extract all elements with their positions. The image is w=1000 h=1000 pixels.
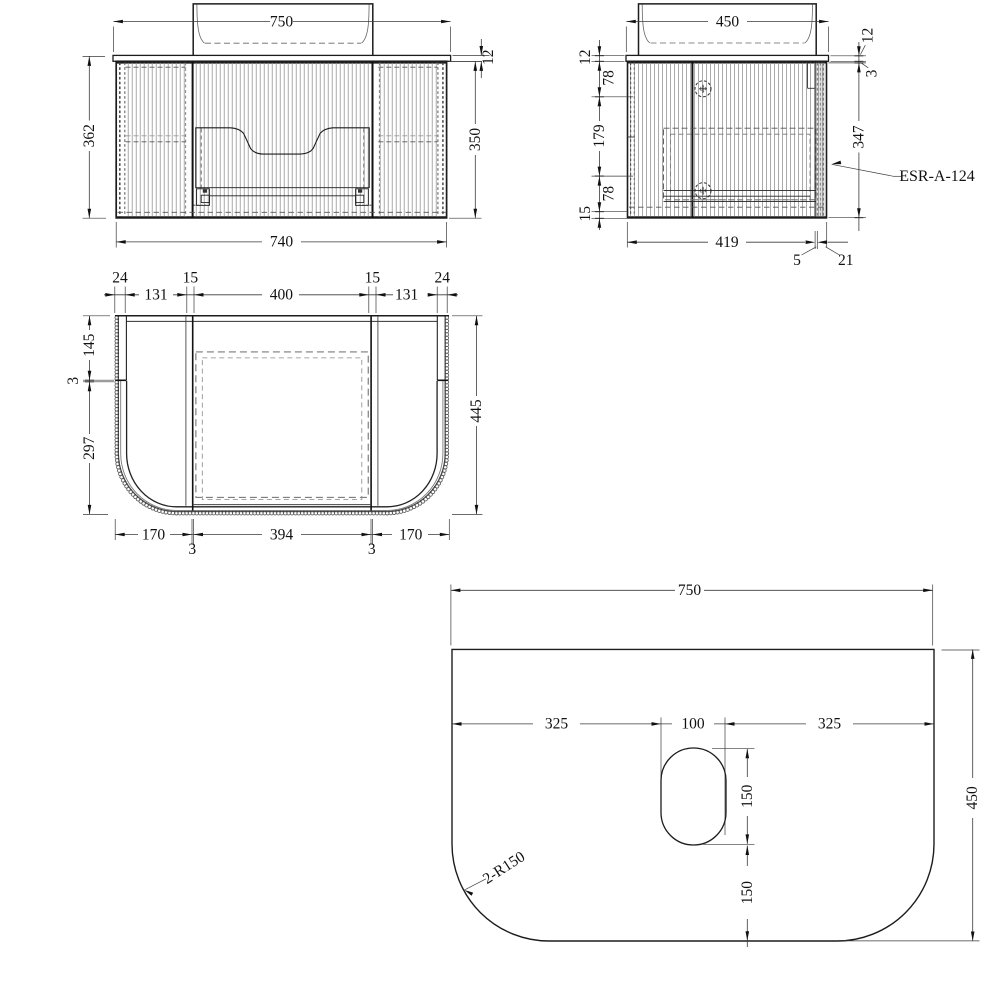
svg-text:179: 179 — [591, 124, 608, 148]
svg-text:350: 350 — [467, 128, 484, 152]
svg-text:170: 170 — [142, 526, 166, 543]
svg-text:362: 362 — [81, 124, 98, 147]
svg-text:5: 5 — [793, 252, 801, 269]
svg-text:78: 78 — [600, 186, 617, 202]
svg-text:750: 750 — [678, 582, 702, 599]
svg-text:3: 3 — [188, 541, 196, 558]
svg-text:325: 325 — [545, 716, 569, 733]
svg-text:ESR-A-124: ESR-A-124 — [899, 168, 975, 185]
svg-text:12: 12 — [859, 28, 876, 44]
svg-text:347: 347 — [850, 125, 867, 149]
svg-text:3: 3 — [368, 541, 376, 558]
svg-text:297: 297 — [81, 436, 98, 460]
svg-text:12: 12 — [480, 49, 497, 64]
svg-text:15: 15 — [365, 269, 381, 286]
svg-text:750: 750 — [270, 13, 294, 30]
svg-text:150: 150 — [739, 881, 756, 905]
svg-text:21: 21 — [838, 252, 854, 269]
svg-text:24: 24 — [112, 269, 128, 286]
svg-text:170: 170 — [399, 526, 423, 543]
svg-text:100: 100 — [681, 716, 705, 733]
svg-text:740: 740 — [270, 234, 294, 251]
svg-text:394: 394 — [270, 526, 294, 543]
svg-text:150: 150 — [739, 784, 756, 808]
svg-text:419: 419 — [715, 234, 739, 251]
svg-text:400: 400 — [270, 287, 294, 304]
svg-text:325: 325 — [818, 716, 842, 733]
svg-text:78: 78 — [600, 70, 617, 86]
svg-text:450: 450 — [716, 13, 740, 30]
svg-text:15: 15 — [577, 206, 594, 222]
svg-text:445: 445 — [468, 399, 485, 423]
svg-text:131: 131 — [395, 287, 418, 304]
svg-text:145: 145 — [81, 333, 98, 357]
svg-text:3: 3 — [65, 377, 82, 385]
svg-text:15: 15 — [183, 269, 199, 286]
svg-text:131: 131 — [144, 287, 167, 304]
svg-text:24: 24 — [434, 269, 450, 286]
svg-text:450: 450 — [964, 786, 981, 810]
svg-text:3: 3 — [863, 69, 880, 77]
svg-text:12: 12 — [577, 49, 594, 64]
